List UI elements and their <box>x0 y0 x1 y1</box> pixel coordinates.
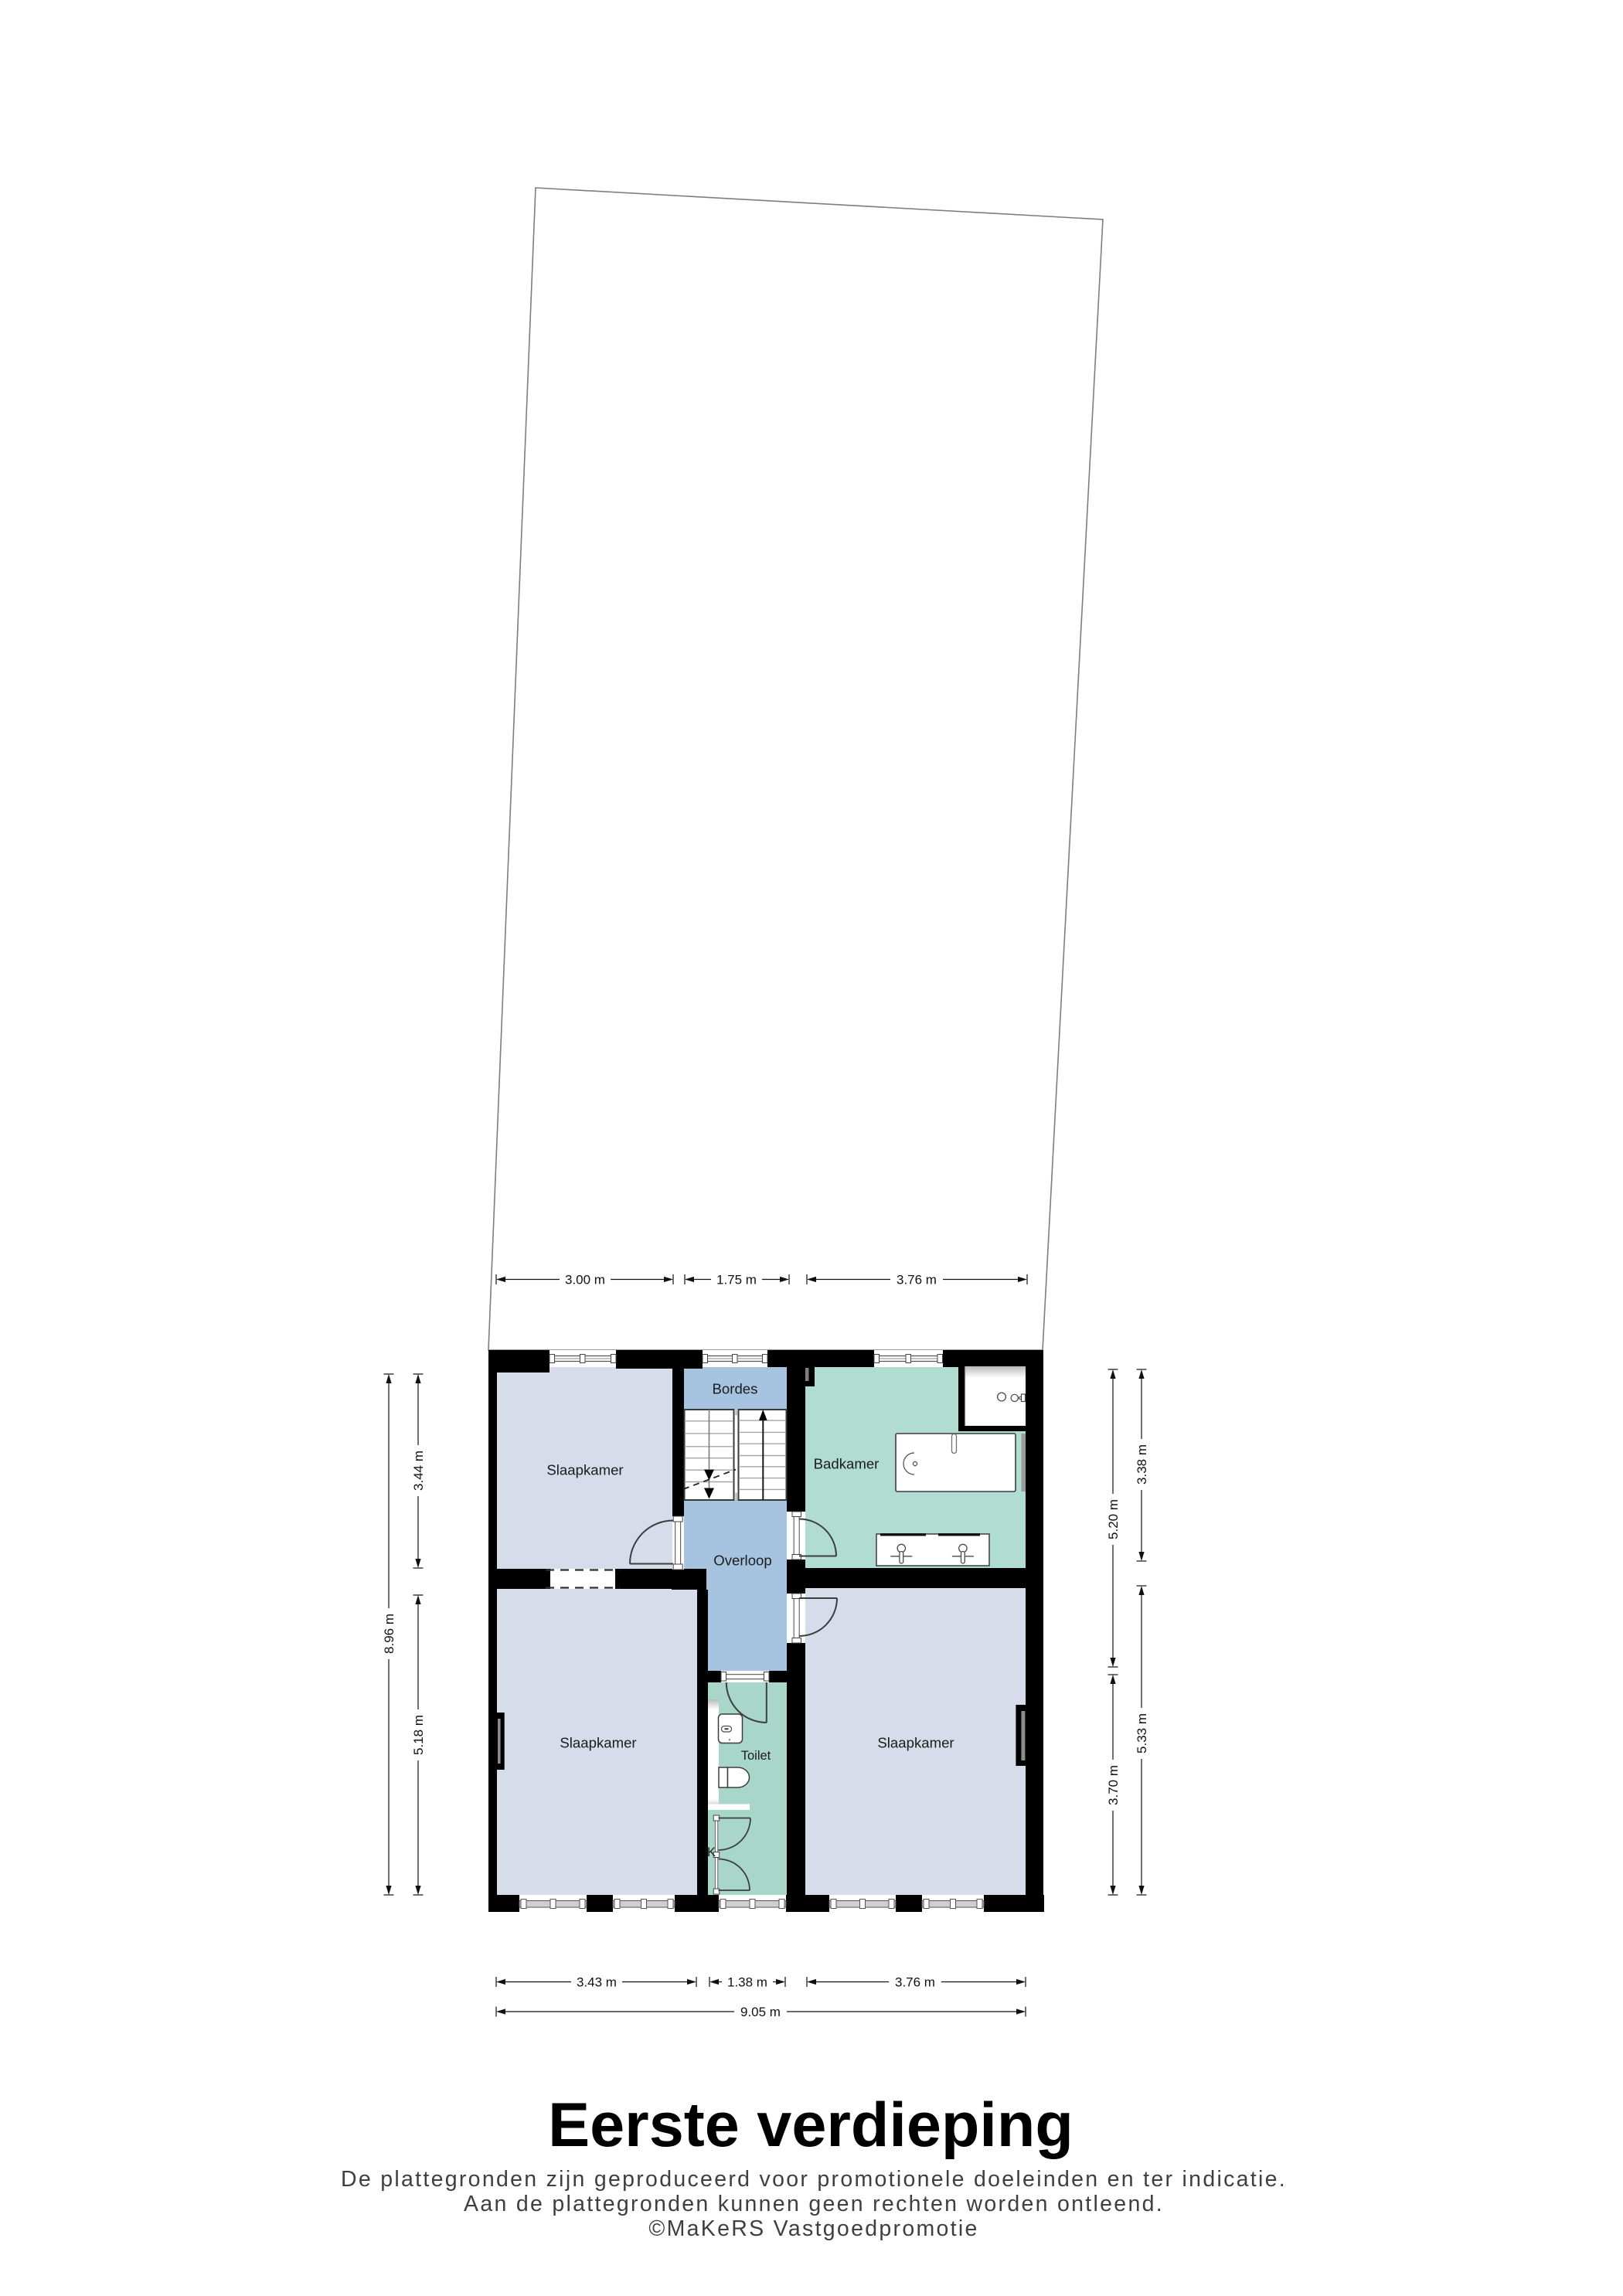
svg-text:3.43 m: 3.43 m <box>577 1975 617 1990</box>
svg-text:3.38 m: 3.38 m <box>1135 1444 1149 1485</box>
svg-text:5.33 m: 5.33 m <box>1135 1713 1149 1753</box>
svg-text:Badkamer: Badkamer <box>814 1456 880 1472</box>
svg-text:8.96 m: 8.96 m <box>382 1614 396 1654</box>
svg-text:Slaapkamer: Slaapkamer <box>546 1462 623 1478</box>
svg-text:5.20 m: 5.20 m <box>1106 1499 1121 1539</box>
svg-text:3.44 m: 3.44 m <box>411 1451 426 1491</box>
svg-text:De plattegronden zijn geproduc: De plattegronden zijn geproduceerd voor … <box>341 2167 1287 2192</box>
svg-text:©MaKeRS Vastgoedpromotie: ©MaKeRS Vastgoedpromotie <box>648 2216 978 2241</box>
svg-text:Slaapkamer: Slaapkamer <box>560 1735 636 1751</box>
svg-text:Slaapkamer: Slaapkamer <box>877 1735 954 1751</box>
svg-text:Bordes: Bordes <box>713 1381 758 1397</box>
svg-text:3.76 m: 3.76 m <box>895 1975 935 1990</box>
svg-text:3.00 m: 3.00 m <box>565 1273 605 1287</box>
svg-text:3.70 m: 3.70 m <box>1106 1765 1121 1805</box>
svg-text:Eerste verdieping: Eerste verdieping <box>548 2090 1073 2160</box>
svg-text:1.38 m: 1.38 m <box>727 1975 767 1990</box>
svg-text:Aan de plattegronden kunnen ge: Aan de plattegronden kunnen geen rechten… <box>464 2192 1164 2216</box>
svg-text:5.18 m: 5.18 m <box>411 1715 426 1755</box>
svg-text:3.76 m: 3.76 m <box>897 1273 937 1287</box>
svg-text:9.05 m: 9.05 m <box>740 2005 781 2019</box>
svg-text:Toilet: Toilet <box>741 1749 771 1763</box>
svg-text:Overloop: Overloop <box>713 1553 771 1569</box>
svg-text:K: K <box>707 1845 716 1859</box>
svg-text:1.75 m: 1.75 m <box>716 1273 757 1287</box>
